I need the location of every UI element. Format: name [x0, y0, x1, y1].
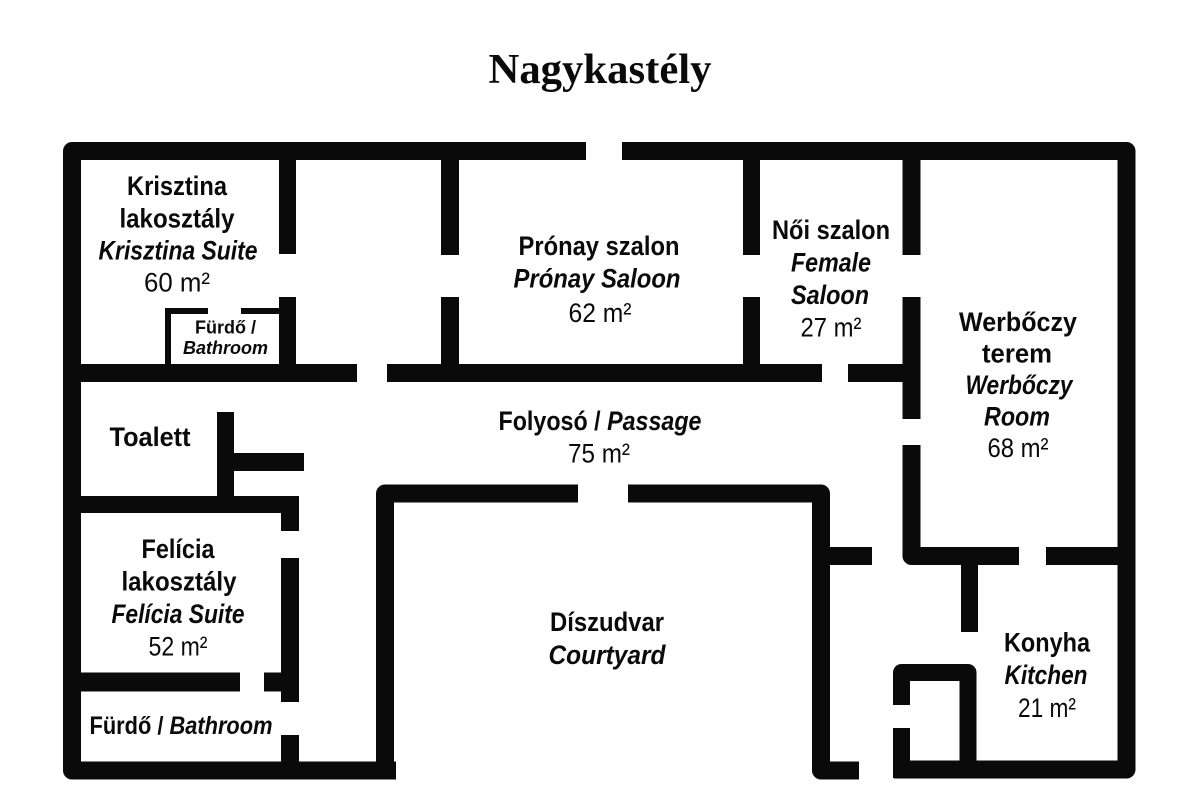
svg-text:terem: terem — [982, 339, 1052, 369]
svg-text:Bathroom: Bathroom — [183, 338, 268, 358]
svg-text:Werbőczy: Werbőczy — [959, 307, 1077, 337]
svg-text:Fürdő /: Fürdő / — [195, 318, 256, 338]
svg-text:62 m²: 62 m² — [569, 298, 632, 328]
svg-text:68 m²: 68 m² — [988, 433, 1049, 463]
svg-text:Női szalon: Női szalon — [772, 215, 890, 245]
svg-text:27 m²: 27 m² — [801, 313, 862, 343]
svg-text:21 m²: 21 m² — [1018, 693, 1076, 723]
svg-text:Konyha: Konyha — [1004, 628, 1091, 658]
svg-text:Prónay szalon: Prónay szalon — [519, 231, 680, 261]
svg-text:52 m²: 52 m² — [149, 632, 208, 662]
svg-text:lakosztály: lakosztály — [120, 204, 235, 234]
svg-text:Kitchen: Kitchen — [1005, 660, 1088, 690]
svg-text:lakosztály: lakosztály — [122, 567, 237, 597]
svg-text:Krisztina: Krisztina — [127, 171, 228, 201]
svg-text:60 m²: 60 m² — [144, 268, 210, 298]
svg-text:Fürdő / Bathroom: Fürdő / Bathroom — [90, 712, 273, 740]
svg-text:Díszudvar: Díszudvar — [550, 607, 664, 637]
svg-text:Folyosó / Passage: Folyosó / Passage — [499, 406, 702, 436]
svg-text:Room: Room — [984, 402, 1050, 432]
svg-text:Female: Female — [791, 248, 871, 278]
svg-text:Saloon: Saloon — [791, 280, 869, 310]
svg-text:Toalett: Toalett — [110, 422, 191, 452]
svg-text:Felícia Suite: Felícia Suite — [112, 599, 245, 629]
svg-text:Krisztina Suite: Krisztina Suite — [99, 236, 258, 266]
svg-text:Courtyard: Courtyard — [549, 640, 666, 670]
svg-text:Nagykastély: Nagykastély — [489, 47, 712, 93]
svg-text:75 m²: 75 m² — [568, 439, 630, 469]
svg-text:Werbőczy: Werbőczy — [966, 370, 1075, 400]
svg-text:Prónay Saloon: Prónay Saloon — [514, 264, 681, 294]
svg-text:Felícia: Felícia — [142, 534, 216, 564]
